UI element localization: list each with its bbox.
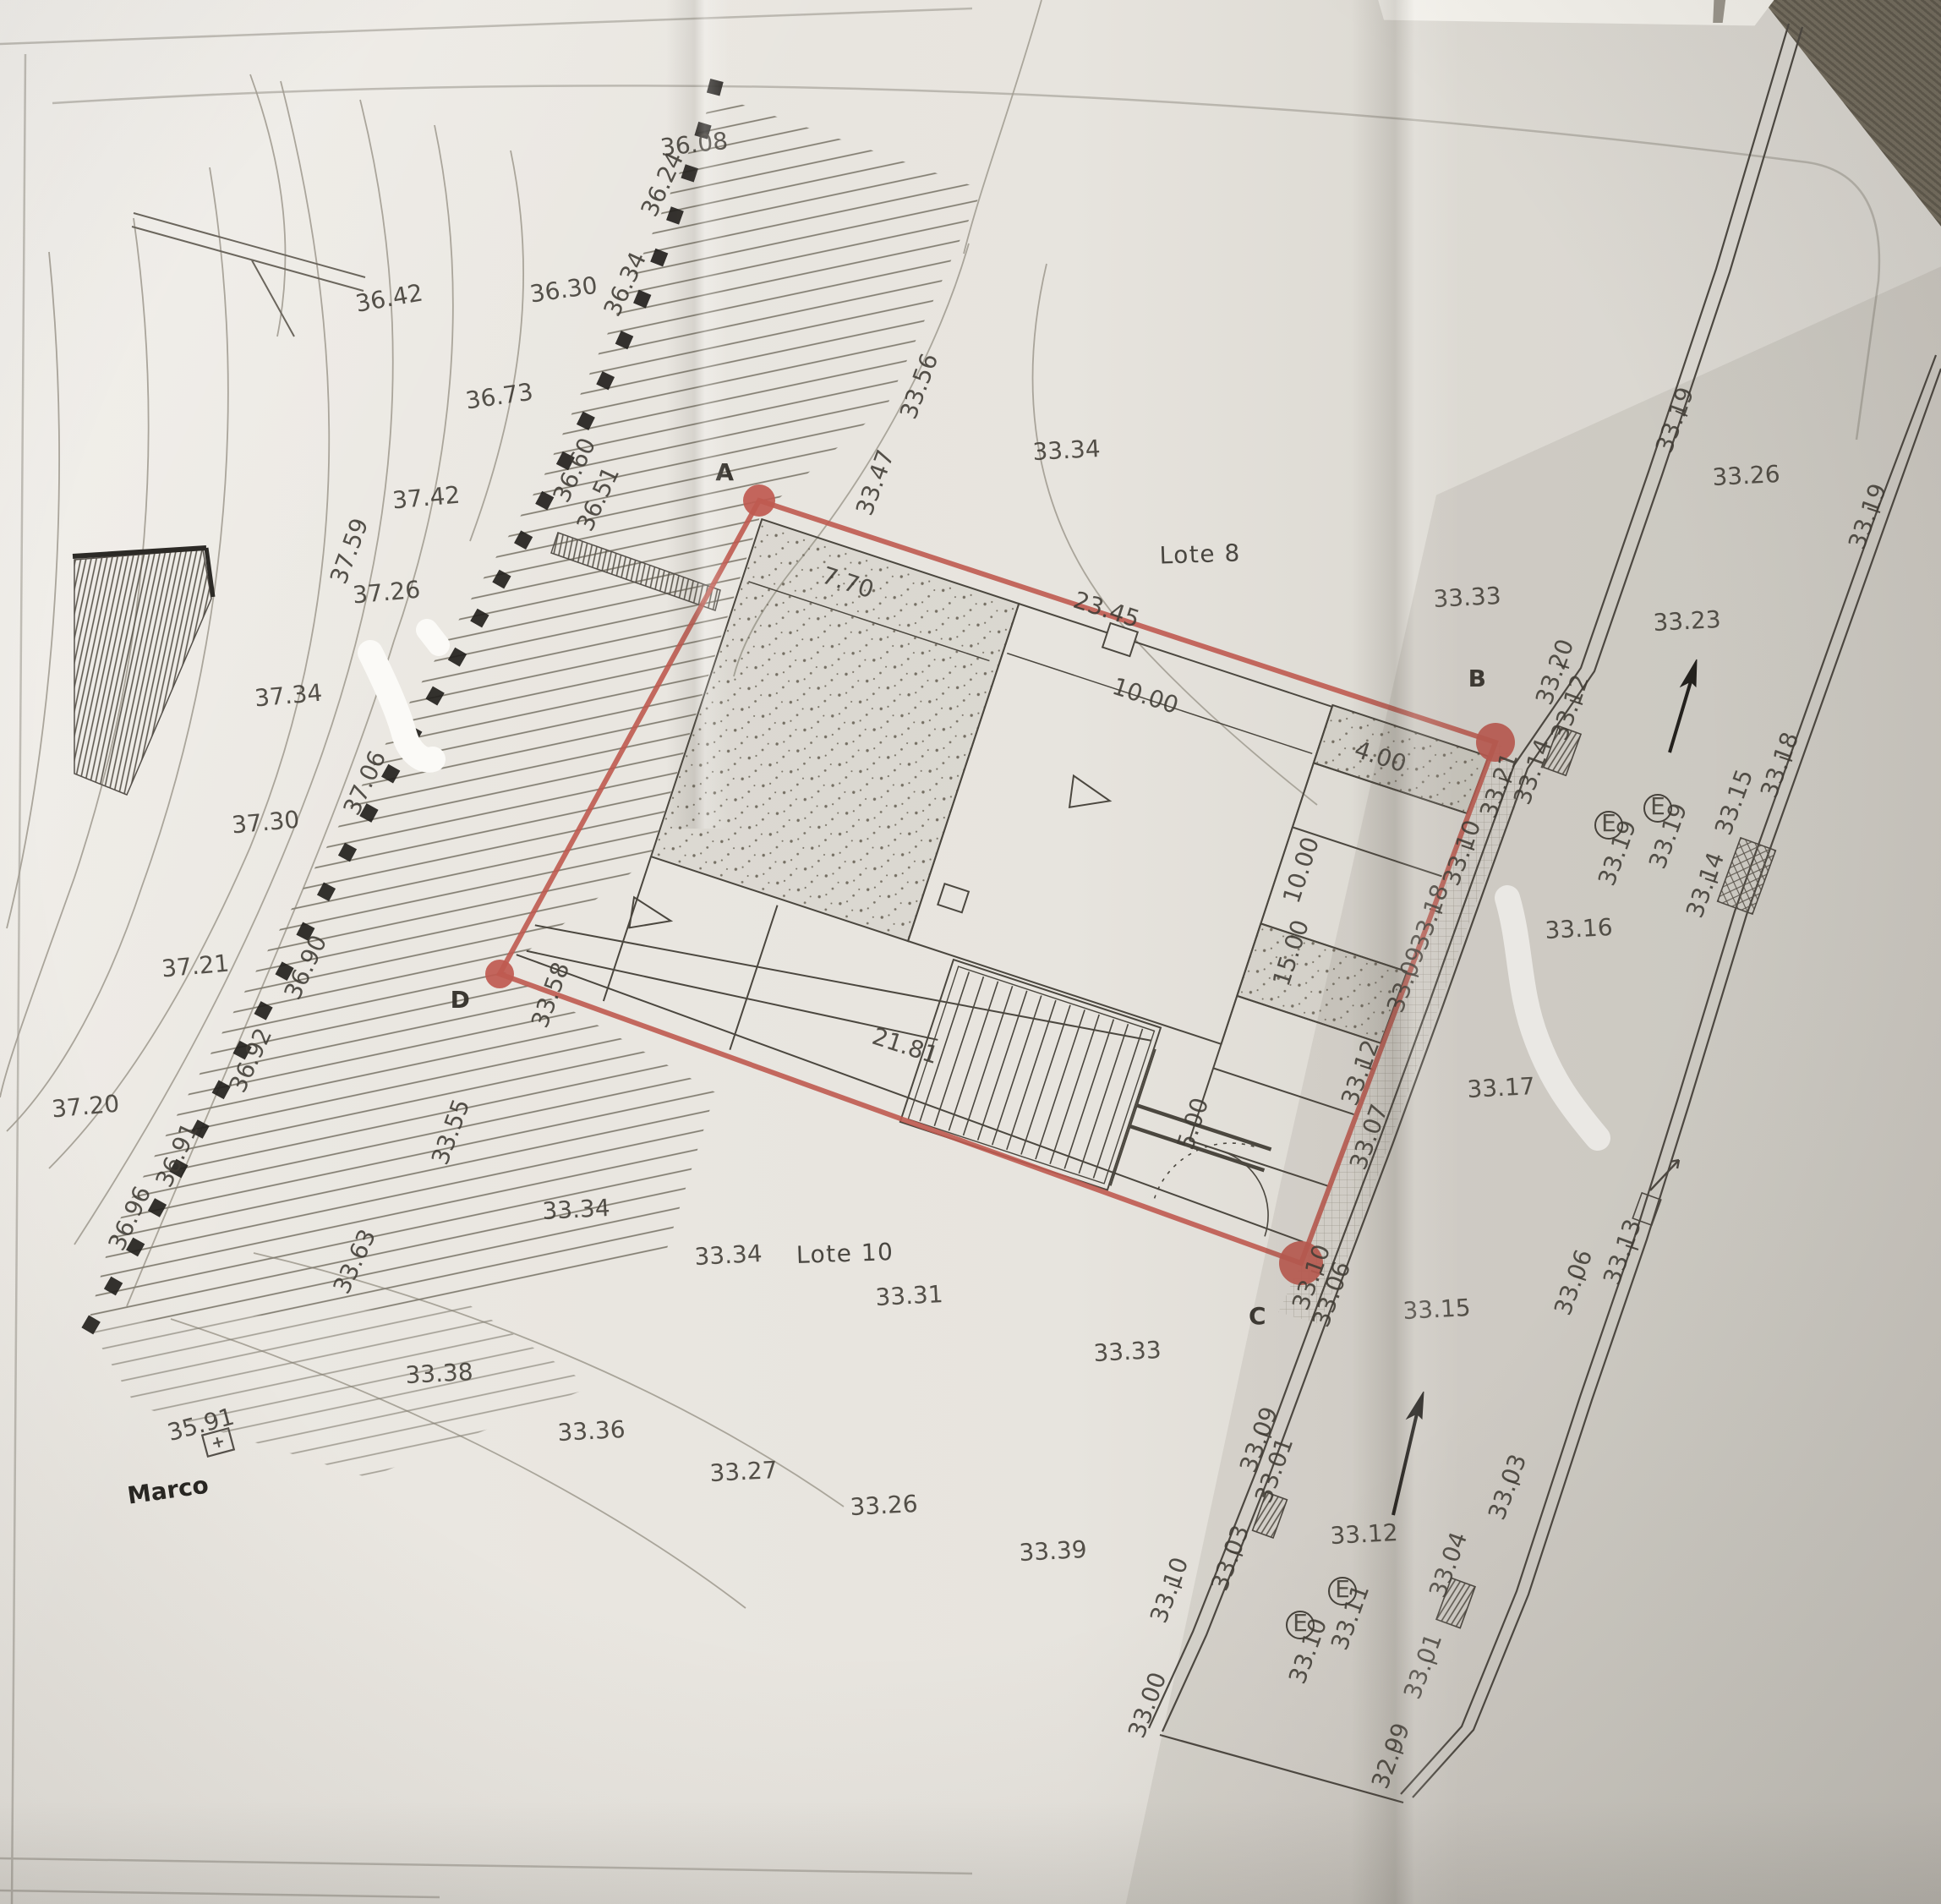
map-label: 37.42 (391, 481, 462, 515)
map-label: 33.03 (1483, 1450, 1532, 1524)
map-label: 33.19 (1650, 383, 1699, 457)
map-label: A (715, 458, 735, 486)
map-label: 36.42 (353, 278, 425, 317)
map-label: 33.33 (1433, 582, 1502, 613)
map-label: 33.34 (694, 1239, 763, 1271)
map-label: 33.47 (850, 446, 899, 519)
map-label: 33.17 (1467, 1072, 1536, 1103)
double-line-feature (132, 213, 365, 336)
map-label: B (1468, 665, 1488, 692)
door-triangle (1063, 775, 1113, 818)
map-label: 32.99 (1366, 1719, 1415, 1792)
map-label: 33.27 (709, 1456, 779, 1487)
map-label: 33.34 (1032, 435, 1102, 466)
photo-of-site-plan: EEEE ABCDLote 8Lote 10Marco35.9136.0836.… (0, 0, 1941, 1904)
wall-opening (938, 884, 969, 912)
map-label: 33.34 (542, 1194, 611, 1225)
map-label: Lote 10 (796, 1238, 894, 1269)
map-label: 33.03 (1206, 1521, 1255, 1595)
map-label: 33.19 (1843, 479, 1892, 553)
map-label: 33.31 (875, 1280, 944, 1311)
map-label: 33.38 (405, 1358, 474, 1389)
map-label: 37.34 (254, 679, 324, 713)
door-arc-dashed (1155, 1122, 1256, 1223)
map-label: 33.00 (1123, 1668, 1172, 1742)
map-label: 10.00 (1109, 672, 1182, 719)
map-label: 33.12 (1330, 1518, 1399, 1550)
map-label: Marco (126, 1471, 211, 1510)
map-label: 37.20 (51, 1090, 121, 1124)
map-label: 37.26 (352, 576, 422, 610)
hatched-structure (73, 548, 213, 795)
map-label: 33.26 (850, 1490, 919, 1521)
map-label: 5.00 (1172, 1094, 1215, 1152)
door-triangle (625, 897, 675, 939)
map-label: 33.33 (1093, 1336, 1162, 1367)
map-label: 33.26 (1712, 460, 1781, 491)
map-label: 36.30 (528, 271, 599, 309)
map-label: 33.10 (1283, 1614, 1332, 1688)
map-label: 33.19 (1593, 816, 1642, 889)
map-label: D (451, 986, 472, 1014)
map-label: 33.13 (1598, 1215, 1647, 1288)
map-label: 33.10 (1145, 1553, 1194, 1627)
map-label: 37.21 (161, 949, 231, 983)
map-label: 33.39 (1019, 1535, 1088, 1567)
map-label: 33.15 (1402, 1294, 1472, 1325)
map-label: 33.01 (1398, 1629, 1447, 1703)
map-label: 33.18 (1755, 728, 1804, 802)
map-label: 33.11 (1326, 1580, 1375, 1654)
map-label: 33.06 (1549, 1245, 1598, 1319)
stairs (900, 960, 1161, 1190)
corner-dot-A (743, 484, 775, 517)
map-label: 37.30 (231, 806, 301, 840)
map-label: 36.73 (464, 378, 535, 415)
map-label: 33.14 (1681, 848, 1730, 922)
map-label: 23.45 (1070, 586, 1143, 633)
map-label: C (1249, 1302, 1267, 1330)
map-label: 37.59 (325, 514, 374, 588)
map-label: 33.23 (1653, 605, 1722, 637)
map-label: Lote 8 (1159, 539, 1241, 569)
map-label: 33.15 (1709, 765, 1758, 839)
site-plan-drawing: EEEE ABCDLote 8Lote 10Marco35.9136.0836.… (0, 0, 1941, 1904)
map-label: 10.00 (1277, 834, 1325, 906)
map-label: 33.16 (1545, 913, 1614, 944)
map-label: 33.36 (557, 1415, 626, 1447)
corner-dot-D (485, 960, 514, 988)
wing-stipple-2 (1237, 923, 1407, 1043)
